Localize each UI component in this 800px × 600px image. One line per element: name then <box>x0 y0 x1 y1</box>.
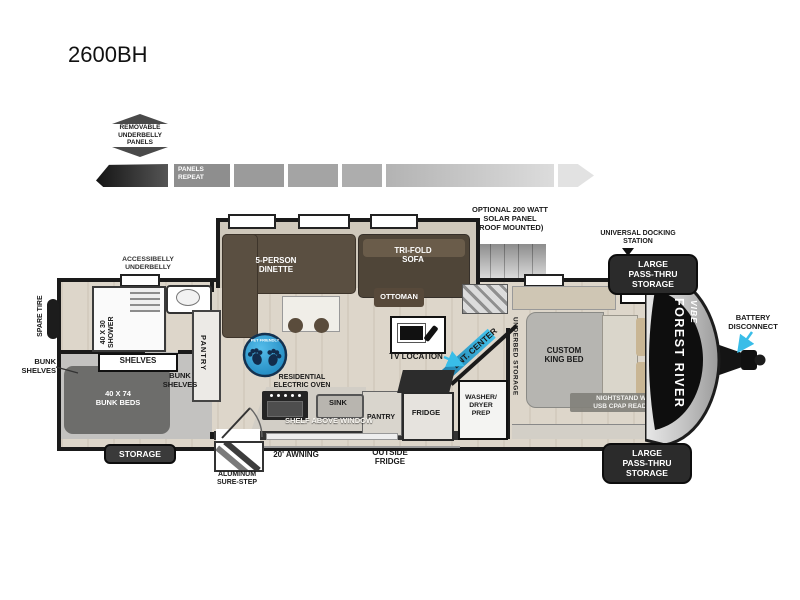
underbelly-badge-label: REMOVABLE UNDERBELLY PANELS <box>108 124 172 147</box>
dinette-stool <box>314 318 329 333</box>
spare-tire-icon <box>47 299 59 339</box>
slideout-window <box>228 214 276 229</box>
sofa-label: TRI-FOLD SOFA <box>368 246 458 265</box>
sink-label: SINK <box>316 399 360 408</box>
slideout-window <box>298 214 350 229</box>
bedroom-steps <box>462 284 508 314</box>
strip-panel <box>342 164 382 187</box>
underbelly-badge: REMOVABLE UNDERBELLY PANELS <box>108 114 172 157</box>
underbed-storage-label: UNDERBED STORAGE <box>511 308 519 404</box>
slideout-window <box>370 214 418 229</box>
pet-badge-label: PET FRIENDLY <box>251 338 280 343</box>
pass-thru-storage-label-top: LARGE PASS-THRU STORAGE <box>608 254 698 295</box>
front-cap: FOREST RIVER VIBE <box>645 268 770 458</box>
tv-location-label: TV LOCATION <box>382 352 450 361</box>
pass-thru-storage-label-bottom: LARGE PASS-THRU STORAGE <box>602 443 692 484</box>
strip-panel <box>288 164 338 187</box>
brand-vibe: VIBE <box>689 300 699 324</box>
docking-station-label: UNIVERSAL DOCKING STATION <box>588 230 688 247</box>
down-arrow-icon <box>112 147 168 157</box>
oven-door <box>267 401 303 417</box>
sure-step-icon <box>214 441 264 472</box>
shelves-label: SHELVES <box>98 356 178 365</box>
bunk-shelves-callout: BUNK SHELVES <box>0 358 56 376</box>
bedroom-cabinet-bottom <box>512 424 648 439</box>
stove-knobs <box>262 391 308 397</box>
fridge-label: FRIDGE <box>402 409 450 418</box>
king-bed-foot <box>602 315 638 405</box>
bedroom-dresser-top <box>512 286 616 310</box>
ottoman-label: OTTOMAN <box>374 293 424 302</box>
page-title: 2600BH <box>68 42 198 68</box>
strip-panel-repeat-label: PANELS REPEAT <box>174 164 230 181</box>
spare-tire-label: SPARE TIRE <box>37 287 45 345</box>
dinette-stool <box>288 318 303 333</box>
outside-fridge-label: OUTSIDE FRIDGE <box>358 448 422 467</box>
strip-panel <box>386 164 554 187</box>
sure-step-label: ALUMINUM SURE-STEP <box>204 471 270 488</box>
pantry-kitchen-label: PANTRY <box>360 414 402 422</box>
dinette-label: 5-PERSON DINETTE <box>234 256 318 275</box>
brand-forest-river: FOREST RIVER <box>672 298 686 408</box>
strip-panel-repeat: PANELS REPEAT <box>174 164 230 187</box>
underbelly-strip: PANELS REPEAT <box>96 164 596 187</box>
bunk-shelves-label: BUNK SHELVES <box>150 372 210 390</box>
awning-label: 20' AWNING <box>264 450 328 459</box>
tv-location-box <box>390 316 446 354</box>
pet-friendly-badge: PET FRIENDLY <box>242 332 288 378</box>
up-arrow-icon <box>112 114 168 124</box>
strip-lead-panel <box>96 164 168 187</box>
right-arrow-icon <box>558 164 594 187</box>
storage-compartment-label: STORAGE <box>104 444 176 464</box>
tv-icon <box>397 323 426 343</box>
bunk-beds-label: 40 X 74 BUNK BEDS <box>72 390 164 408</box>
kitchen-window <box>266 433 398 440</box>
sink-bowl-icon <box>176 289 200 306</box>
king-bed-label: CUSTOM KING BED <box>528 346 600 365</box>
floorplan-page: 2600BH REMOVABLE UNDERBELLY PANELS PANEL… <box>0 0 800 600</box>
dinette-bench-left <box>222 234 258 338</box>
strip-panel <box>234 164 284 187</box>
washer-dryer-label: WASHER/ DRYER PREP <box>458 394 504 418</box>
shower-label: 40 X 30 SHOWER <box>100 305 117 359</box>
linen-shelves <box>130 288 160 312</box>
accessibelly-label: ACCESSIBELLY UNDERBELLY <box>92 256 204 272</box>
battery-disconnect-label: BATTERY DISCONNECT <box>716 314 790 332</box>
